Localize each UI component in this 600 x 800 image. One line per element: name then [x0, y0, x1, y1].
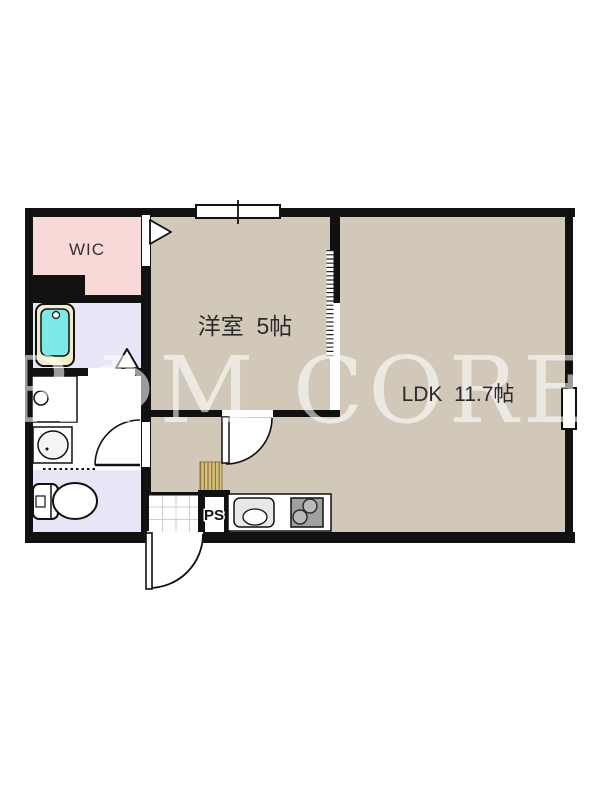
floor-plan-page: RΦM CORE WIC 洋室 5帖 LDK 11.7帖 PS — [0, 0, 600, 800]
wic-label: WIC — [69, 240, 105, 259]
genkan-step-edge — [147, 492, 204, 496]
wall-wic-block — [33, 275, 85, 297]
genkan-tile-icon — [147, 492, 204, 532]
wic-doorway — [142, 215, 150, 266]
shoe-step-icon — [200, 462, 222, 492]
toilet-bowl — [53, 483, 97, 519]
floor-plan-drawing: RΦM CORE WIC 洋室 5帖 LDK 11.7帖 PS — [0, 0, 600, 800]
wall-top — [25, 208, 575, 217]
pipe-space-label: PS — [204, 507, 224, 524]
wall-bottom — [25, 532, 575, 543]
stove-burner-2 — [293, 510, 307, 524]
entrance-door-icon — [146, 533, 203, 589]
washbasin-drain — [46, 448, 49, 451]
kitchen-counter — [228, 494, 331, 531]
western-room-label: 洋室 5帖 — [198, 313, 293, 339]
stove-burner-1 — [303, 499, 317, 513]
entrance-door-leaf — [146, 533, 152, 589]
ldk-label: LDK 11.7帖 — [402, 383, 515, 406]
bathtub-drain — [53, 312, 60, 319]
wall-under-wic — [33, 295, 141, 303]
toilet-icon — [33, 483, 97, 519]
kitchen-sink-bowl — [243, 509, 267, 525]
